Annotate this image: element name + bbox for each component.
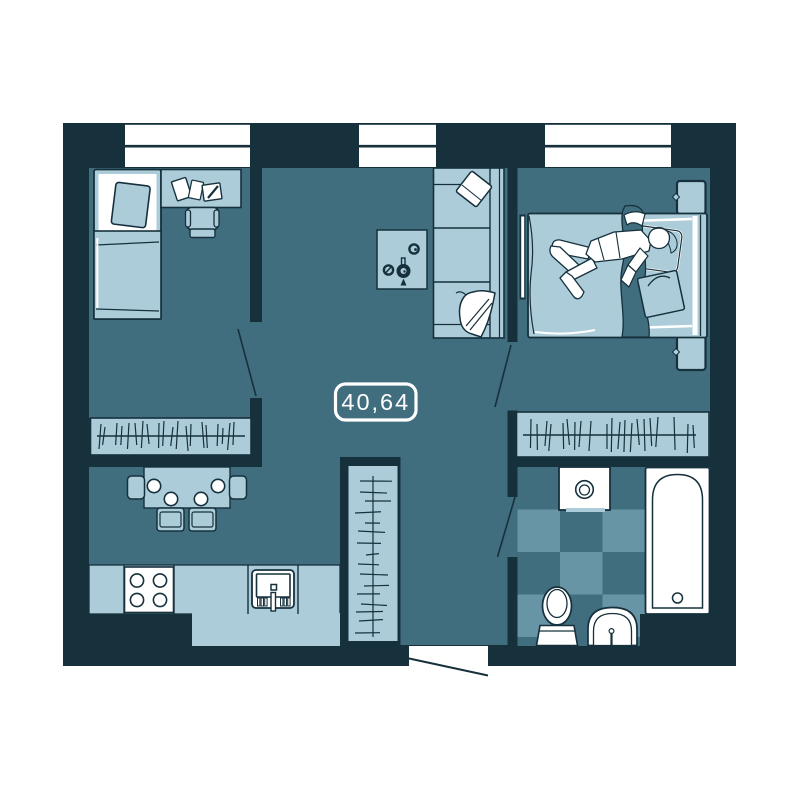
svg-text:40,64: 40,64: [341, 389, 410, 415]
